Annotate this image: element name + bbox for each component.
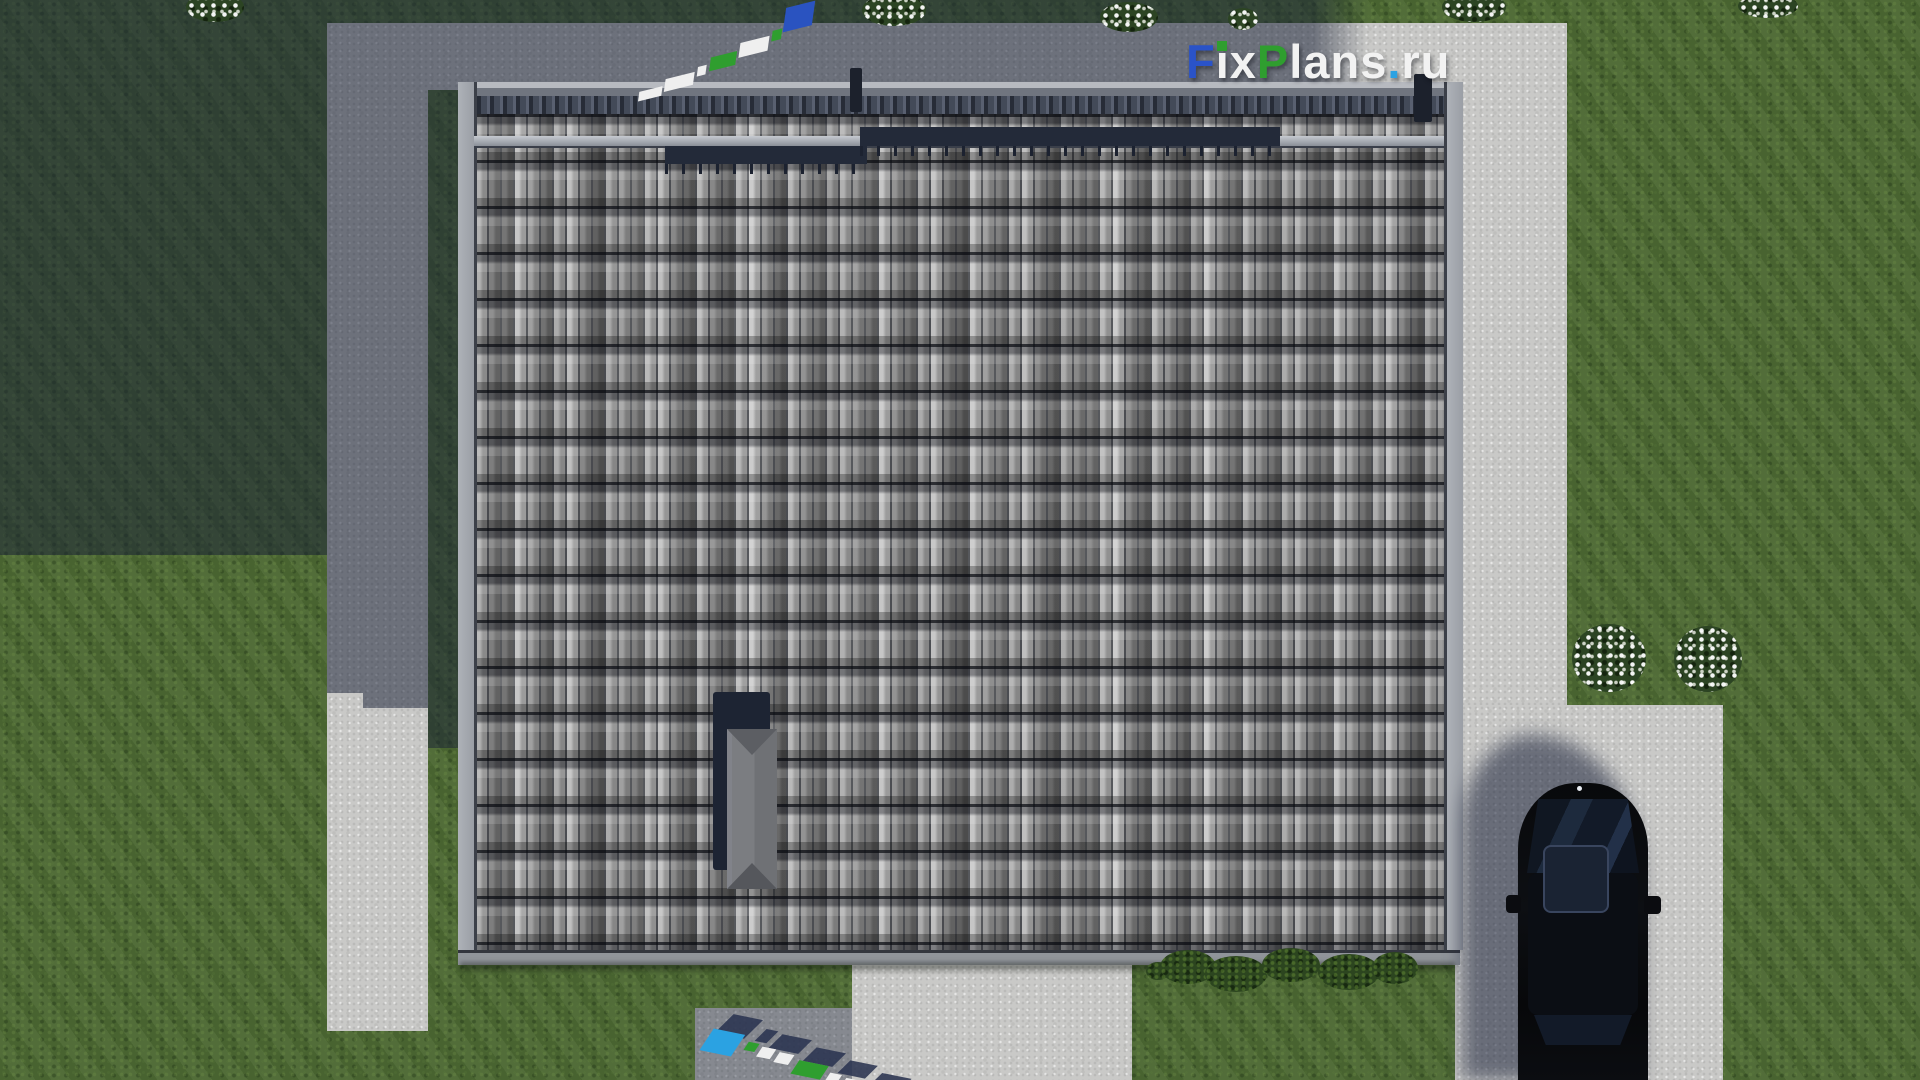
brand-letter-f: F xyxy=(1186,35,1216,88)
chimney-bottom-cap xyxy=(727,863,777,889)
flower-bush xyxy=(1100,2,1158,32)
brand-letter-i: i xyxy=(1216,34,1230,89)
shrub xyxy=(1262,948,1320,982)
walkway-right xyxy=(1460,23,1567,713)
chimney xyxy=(727,729,777,889)
house-shadow-left-step xyxy=(327,555,460,693)
car-mirror-left xyxy=(1506,895,1521,913)
car xyxy=(1518,783,1648,1080)
snow-guard-bar-right xyxy=(860,127,1280,146)
house-shadow-strip xyxy=(428,708,460,748)
flower-bush xyxy=(1674,626,1742,692)
shrub xyxy=(1372,952,1418,984)
car-sunroof xyxy=(1543,845,1609,913)
chimney-top-cap xyxy=(727,729,777,755)
snow-guard-bar-left xyxy=(665,146,867,164)
scene-aerial-roof-view: FixPlans.ru xyxy=(0,0,1920,1080)
roof-edge-board-right xyxy=(1444,82,1463,950)
roof-tiles xyxy=(474,114,1444,950)
car-rear-window xyxy=(1534,1015,1632,1045)
roof-fascia-shadow xyxy=(458,88,1460,96)
roof-vent-mark-left xyxy=(850,68,862,112)
house-shadow-left xyxy=(0,90,460,555)
car-antenna-dot xyxy=(1577,786,1582,791)
house-shadow-corner-step xyxy=(363,693,460,708)
brand-watermark: FixPlans.ru xyxy=(1186,34,1450,89)
house-roof xyxy=(458,82,1460,962)
brand-dot: . xyxy=(1387,35,1401,88)
brand-letters-ru: ru xyxy=(1401,35,1450,88)
shrub xyxy=(1205,956,1267,992)
brand-letter-x: x xyxy=(1230,35,1257,88)
brand-letters-lans: lans xyxy=(1289,35,1387,88)
car-mirror-right xyxy=(1644,896,1661,914)
roof-ridge xyxy=(474,96,1444,114)
roof-edge-board-left xyxy=(458,82,477,950)
flower-bush xyxy=(1228,8,1258,30)
flower-bush xyxy=(1572,624,1646,692)
brand-letter-p: P xyxy=(1257,35,1289,88)
shrub xyxy=(1318,954,1380,990)
